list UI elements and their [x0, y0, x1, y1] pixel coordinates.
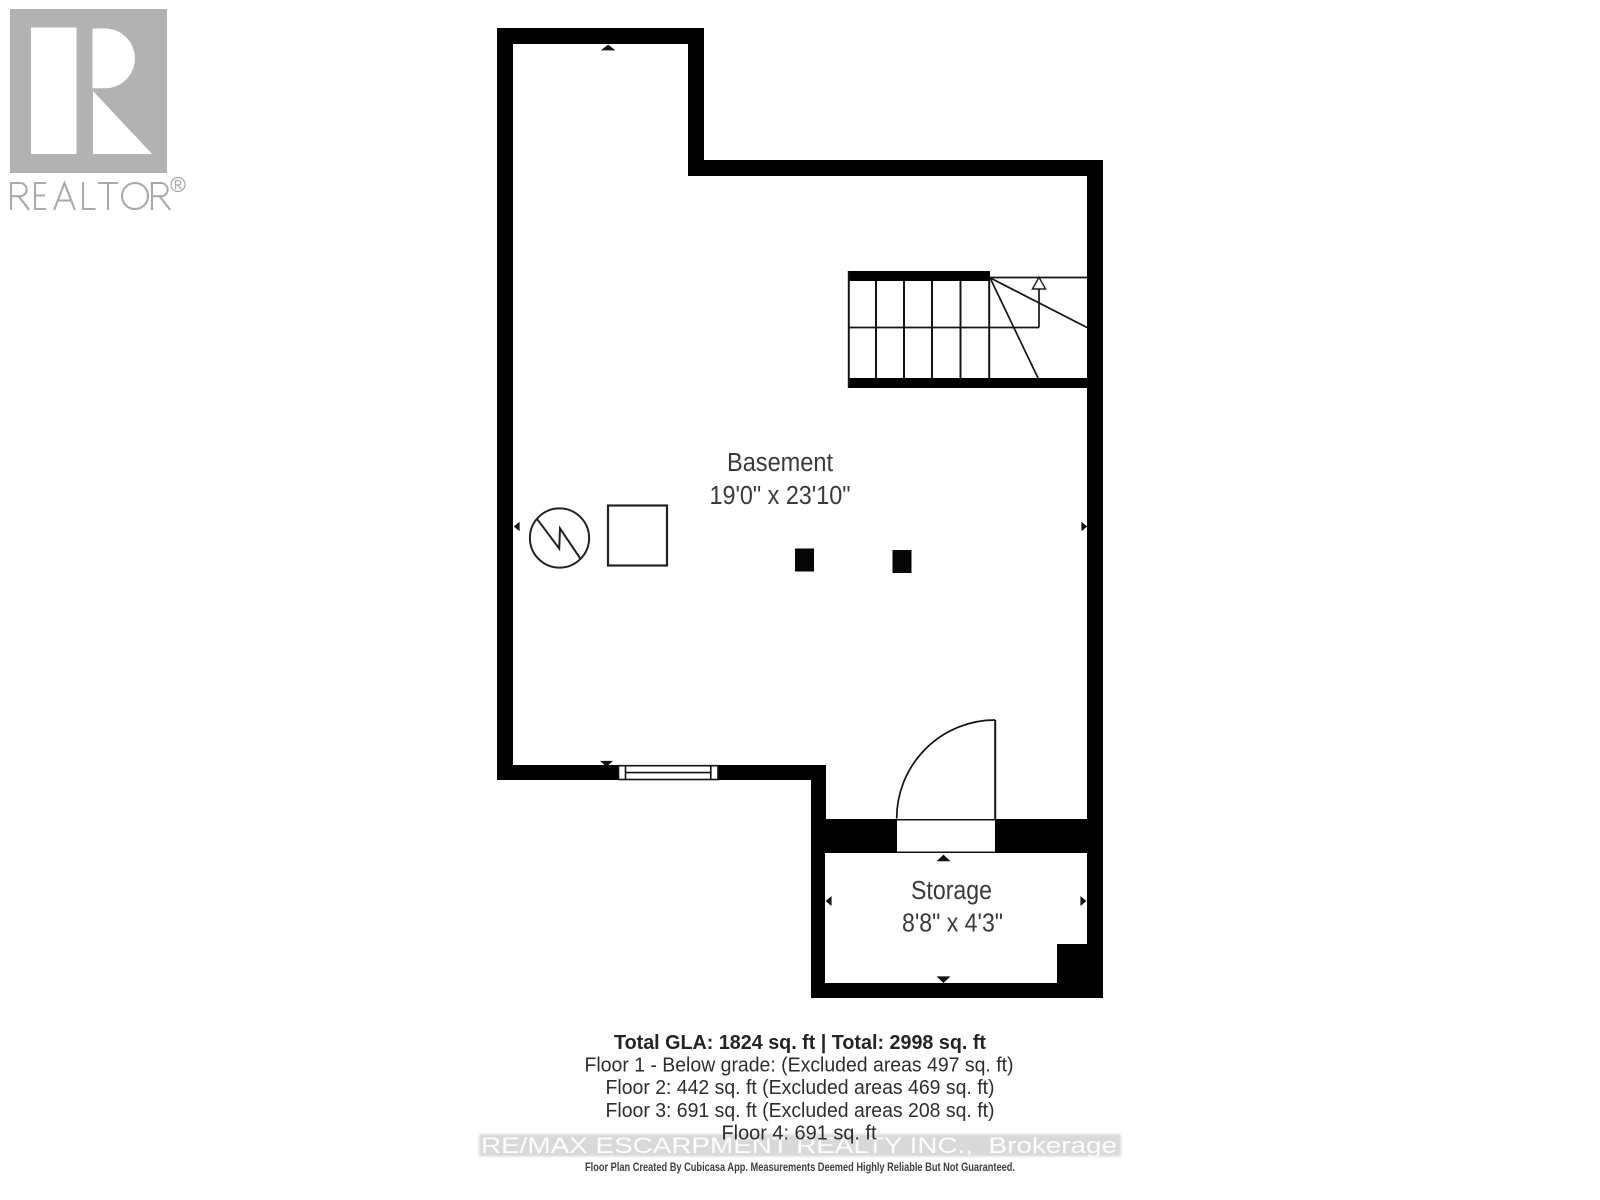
- svg-text:Total GLA: 1824 sq. ft | Total: Total GLA: 1824 sq. ft | Total: 2998 sq.…: [614, 1031, 986, 1054]
- svg-text:8'8" x 4'3": 8'8" x 4'3": [902, 910, 1003, 938]
- svg-text:Floor 2: 442 sq. ft (Excluded: Floor 2: 442 sq. ft (Excluded areas 469 …: [606, 1077, 995, 1099]
- svg-text:Floor 1 - Below grade: (Exclud: Floor 1 - Below grade: (Excluded areas 4…: [585, 1055, 1014, 1077]
- svg-text:Floor 3: 691 sq. ft (Excluded: Floor 3: 691 sq. ft (Excluded areas 208 …: [606, 1100, 995, 1122]
- svg-text:Basement: Basement: [727, 449, 833, 477]
- svg-text:19'0" x 23'10": 19'0" x 23'10": [710, 482, 851, 510]
- svg-text:Floor Plan Created By Cubicasa: Floor Plan Created By Cubicasa App. Meas…: [585, 1160, 1015, 1174]
- svg-text:Floor 4: 691 sq. ft: Floor 4: 691 sq. ft: [722, 1123, 877, 1145]
- svg-text:Storage: Storage: [911, 877, 992, 905]
